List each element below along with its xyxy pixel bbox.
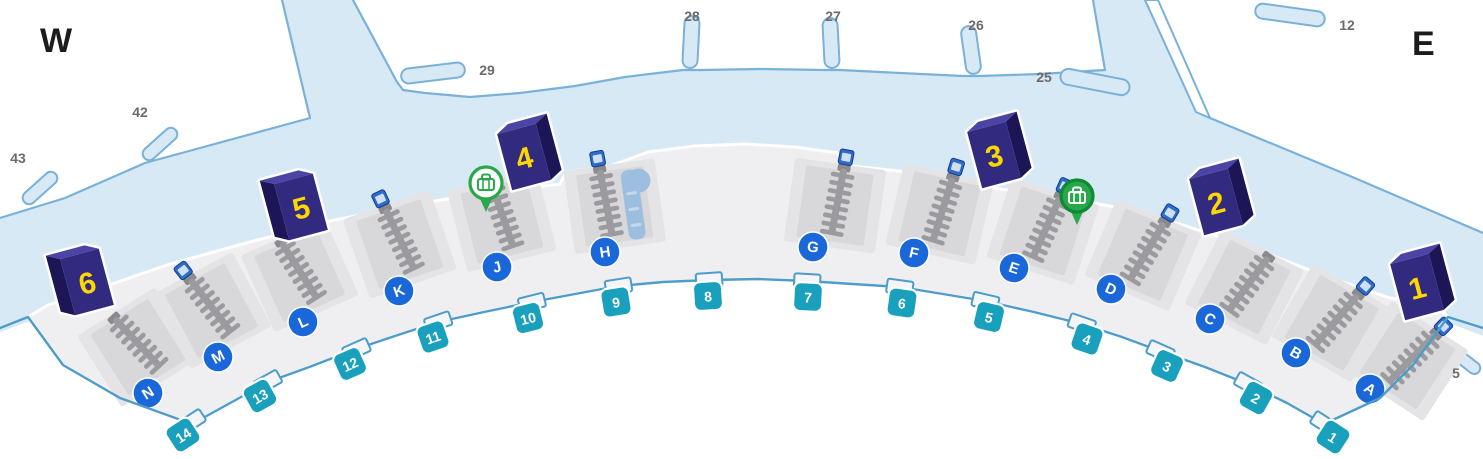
belt-status-sign: [838, 149, 855, 166]
door-number: 7: [804, 289, 813, 305]
gate-label-27: 27: [825, 8, 841, 24]
carousel-letter: G: [806, 238, 820, 256]
compass-east-label: E: [1412, 25, 1435, 63]
pin-circle: [470, 167, 502, 199]
pin-circle: [1061, 180, 1093, 212]
airport-terminal-map: NMLKJHGFEDCBA 1413121110987654321 654321…: [0, 0, 1483, 459]
door-10[interactable]: 10: [510, 300, 545, 335]
door-5[interactable]: 5: [972, 300, 1007, 335]
door-number: 8: [704, 288, 713, 305]
belt-status-sign: [589, 150, 606, 167]
gate-label-29: 29: [479, 62, 495, 78]
gate-label-43: 43: [10, 150, 26, 166]
gate-label-28: 28: [684, 8, 700, 24]
door-6[interactable]: 6: [886, 287, 919, 320]
gate-stub-27: [822, 18, 840, 69]
gate-label-42: 42: [132, 104, 148, 120]
gate-label-12: 12: [1339, 17, 1355, 33]
terminal-map-canvas: NMLKJHGFEDCBA 1413121110987654321 654321…: [0, 0, 1483, 459]
door-7[interactable]: 7: [793, 282, 823, 312]
gate-label-5: 5: [1452, 365, 1460, 381]
gate-label-26: 26: [968, 17, 984, 33]
compass-west-label: W: [40, 22, 73, 60]
door-8[interactable]: 8: [693, 281, 724, 312]
gate-label-25: 25: [1036, 69, 1052, 85]
door-9[interactable]: 9: [599, 285, 632, 318]
